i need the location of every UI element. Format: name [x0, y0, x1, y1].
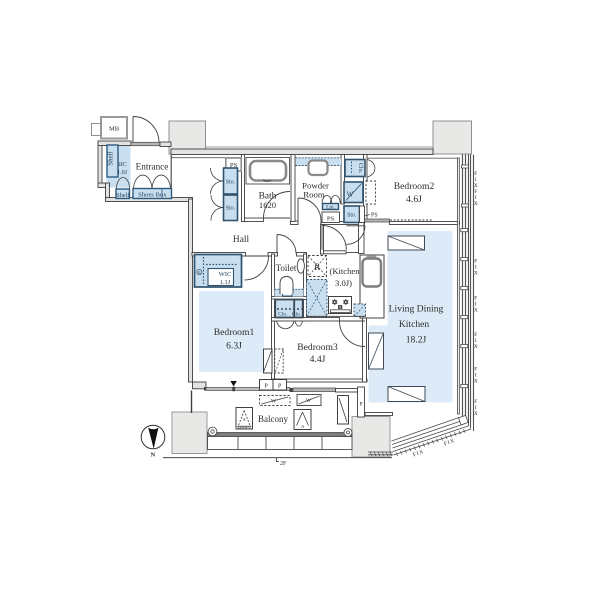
svg-text:MB: MB — [109, 126, 120, 133]
svg-text:P: P — [359, 401, 362, 407]
svg-text:18.2J: 18.2J — [406, 334, 427, 345]
svg-text:PS: PS — [371, 212, 378, 218]
svg-text:Sto.: Sto. — [226, 206, 236, 212]
svg-text:Clo.: Clo. — [292, 311, 301, 317]
svg-text:W: W — [347, 191, 354, 199]
svg-text:SIC: SIC — [117, 162, 126, 168]
svg-text:P: P — [264, 383, 268, 390]
svg-text:4.4J: 4.4J — [310, 354, 326, 365]
svg-text:Room: Room — [303, 189, 325, 199]
svg-text:Bedroom3: Bedroom3 — [297, 342, 338, 353]
svg-text:Sto.: Sto. — [226, 180, 236, 186]
svg-text:Kitchen: Kitchen — [399, 319, 430, 330]
svg-text:Bedroom2: Bedroom2 — [394, 181, 435, 192]
svg-text:1.0J: 1.0J — [117, 170, 128, 176]
svg-text:Living Dining: Living Dining — [389, 303, 444, 314]
svg-text:Hall: Hall — [233, 235, 250, 245]
svg-text:Bedroom1: Bedroom1 — [214, 327, 255, 338]
svg-text:B: B — [198, 270, 201, 275]
svg-text:Shoes Box: Shoes Box — [138, 192, 167, 199]
svg-text:Lin.: Lin. — [326, 205, 335, 211]
svg-text:3.0J): 3.0J) — [335, 278, 352, 288]
svg-text:2F: 2F — [280, 461, 287, 467]
svg-text:P: P — [278, 383, 282, 390]
svg-text:WIC: WIC — [219, 271, 231, 278]
svg-text:(Kitchen: (Kitchen — [329, 266, 360, 276]
svg-text:Sto.: Sto. — [347, 213, 357, 219]
svg-text:Toilet: Toilet — [276, 263, 297, 273]
svg-text:Balcony: Balcony — [258, 414, 288, 424]
svg-text:1.1J: 1.1J — [220, 279, 231, 286]
svg-text:1620: 1620 — [259, 200, 276, 210]
svg-text:Entrance: Entrance — [136, 162, 169, 172]
svg-text:N: N — [150, 452, 155, 459]
svg-text:EPWH-U: EPWH-U — [238, 425, 252, 429]
svg-text:PS: PS — [327, 215, 335, 222]
svg-text:Clo.: Clo. — [278, 311, 287, 317]
svg-text:Shelf: Shelf — [108, 151, 115, 166]
svg-text:Clo.: Clo. — [357, 163, 363, 174]
svg-text:6.3J: 6.3J — [226, 340, 242, 351]
svg-text:R: R — [314, 262, 320, 272]
svg-text:Shelf: Shelf — [116, 192, 130, 199]
svg-text:PS: PS — [230, 162, 238, 169]
svg-text:4.6J: 4.6J — [406, 194, 422, 205]
